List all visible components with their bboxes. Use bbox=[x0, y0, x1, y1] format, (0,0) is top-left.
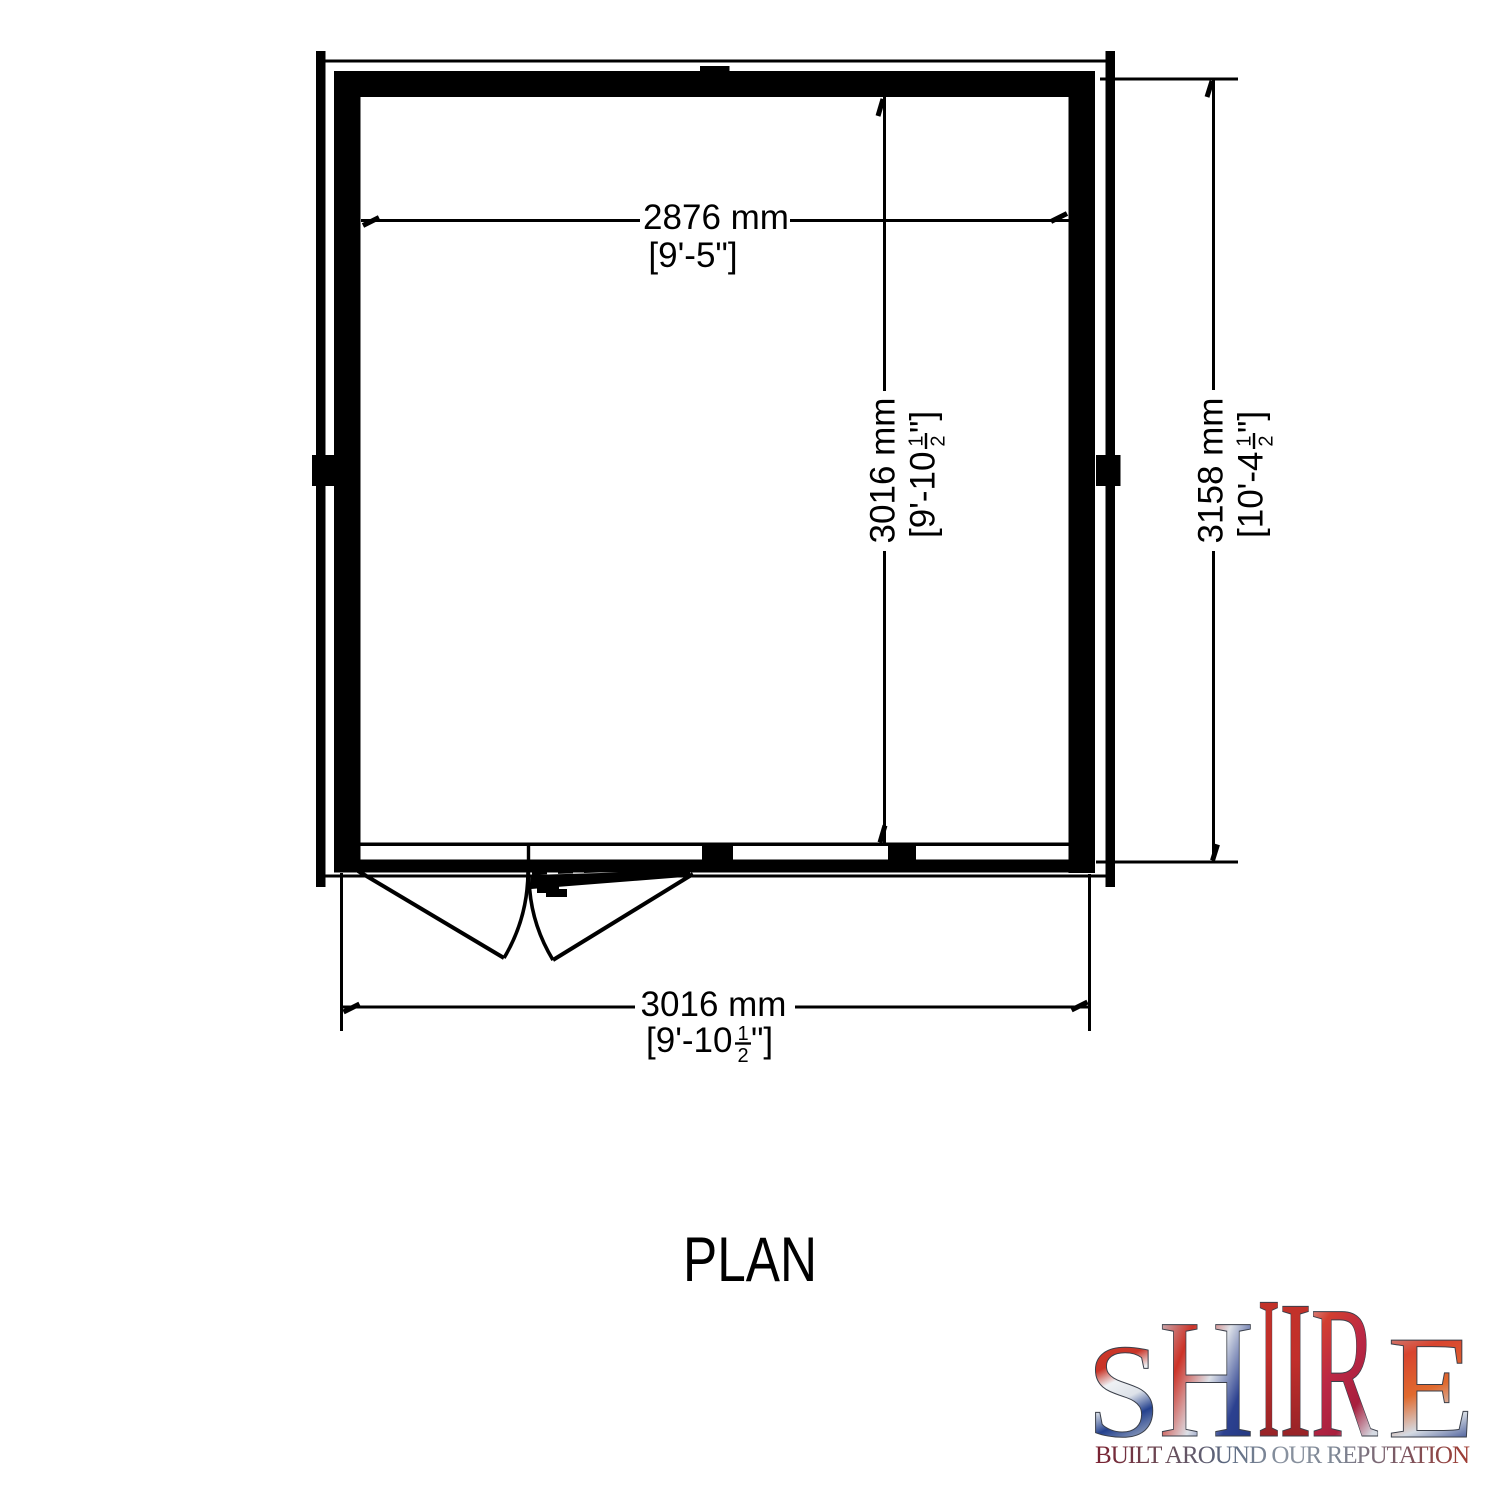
svg-text:2: 2 bbox=[737, 1045, 748, 1067]
svg-text:[9'-10: [9'-10 bbox=[646, 1021, 732, 1060]
svg-text:"]: "] bbox=[1232, 411, 1271, 433]
svg-text:2: 2 bbox=[928, 435, 950, 446]
svg-text:1: 1 bbox=[737, 1023, 748, 1045]
svg-text:BUILT AROUND OUR REPUTATION: BUILT AROUND OUR REPUTATION bbox=[1095, 1442, 1470, 1469]
svg-text:"]: "] bbox=[751, 1021, 773, 1060]
svg-text:[9'-5"]: [9'-5"] bbox=[648, 236, 737, 275]
svg-text:2876 mm: 2876 mm bbox=[643, 198, 789, 237]
svg-text:3016 mm: 3016 mm bbox=[864, 398, 903, 544]
svg-text:PLAN: PLAN bbox=[683, 1225, 817, 1295]
svg-text:"]: "] bbox=[904, 411, 943, 433]
svg-text:3158 mm: 3158 mm bbox=[1192, 398, 1231, 544]
svg-text:1: 1 bbox=[1234, 435, 1256, 446]
svg-text:1: 1 bbox=[906, 435, 928, 446]
svg-text:[9'-10: [9'-10 bbox=[904, 452, 943, 538]
svg-text:[10'-4: [10'-4 bbox=[1232, 452, 1271, 538]
svg-text:3016 mm: 3016 mm bbox=[641, 985, 787, 1024]
svg-text:2: 2 bbox=[1256, 435, 1278, 446]
